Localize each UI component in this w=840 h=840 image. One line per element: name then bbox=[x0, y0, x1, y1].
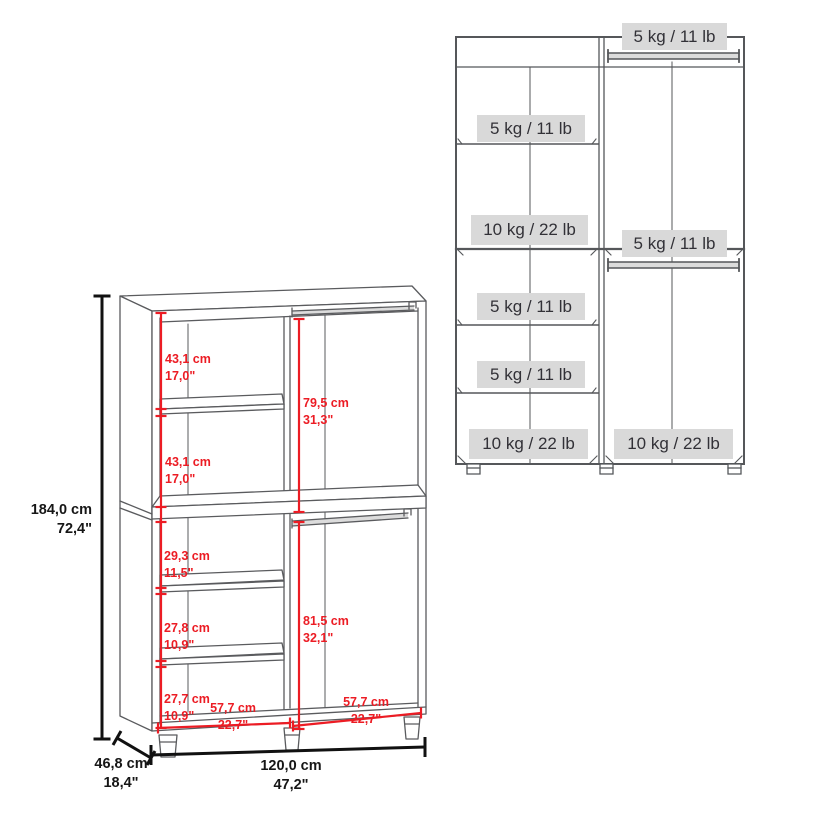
dim-in: 22,7" bbox=[198, 717, 268, 734]
linework bbox=[0, 0, 840, 840]
dim-cm: 184,0 cm bbox=[6, 501, 92, 520]
dim-top-left-upper: 43,1 cm 17,0" bbox=[165, 351, 211, 385]
weight-label: 5 kg / 11 lb bbox=[622, 23, 727, 50]
dim-in: 18,4" bbox=[84, 774, 158, 793]
dim-overall-height: 184,0 cm 72,4" bbox=[6, 501, 92, 539]
dim-bottom-left-2: 27,8 cm 10,9" bbox=[164, 620, 210, 654]
weight-label: 5 kg / 11 lb bbox=[477, 361, 585, 388]
dim-cm: 57,7 cm bbox=[198, 700, 268, 717]
dim-top-left-lower: 43,1 cm 17,0" bbox=[165, 454, 211, 488]
dim-in: 17,0" bbox=[165, 471, 211, 488]
dim-overall-depth: 46,8 cm 18,4" bbox=[84, 755, 158, 793]
dim-in: 47,2" bbox=[243, 776, 339, 795]
dim-in: 31,3" bbox=[303, 412, 349, 429]
weight-label: 5 kg / 11 lb bbox=[477, 115, 585, 142]
dim-in: 32,1" bbox=[303, 630, 349, 647]
weight-label: 10 kg / 22 lb bbox=[469, 429, 588, 459]
dim-cm: 79,5 cm bbox=[303, 395, 349, 412]
dim-bottom-left-1: 29,3 cm 11,5" bbox=[164, 548, 210, 582]
dim-in: 11,5" bbox=[164, 565, 210, 582]
dim-cm: 81,5 cm bbox=[303, 613, 349, 630]
weight-label: 10 kg / 22 lb bbox=[471, 215, 588, 245]
dim-overall-width: 120,0 cm 47,2" bbox=[243, 757, 339, 795]
product-dimension-sheet: 43,1 cm 17,0" 43,1 cm 17,0" 79,5 cm 31,3… bbox=[0, 0, 840, 840]
dim-bottom-left-width: 57,7 cm 22,7" bbox=[198, 700, 268, 734]
dim-cm: 120,0 cm bbox=[243, 757, 339, 776]
dim-in: 22,7" bbox=[331, 711, 401, 728]
dim-in: 10,9" bbox=[164, 637, 210, 654]
weight-label: 10 kg / 22 lb bbox=[614, 429, 733, 459]
dim-in: 72,4" bbox=[6, 520, 92, 539]
weight-label: 5 kg / 11 lb bbox=[477, 293, 585, 320]
dim-cm: 57,7 cm bbox=[331, 694, 401, 711]
dim-cm: 43,1 cm bbox=[165, 454, 211, 471]
dim-cm: 27,8 cm bbox=[164, 620, 210, 637]
front-feet bbox=[467, 464, 741, 474]
dim-bottom-right-hang: 81,5 cm 32,1" bbox=[303, 613, 349, 647]
dim-cm: 46,8 cm bbox=[84, 755, 158, 774]
dim-in: 17,0" bbox=[165, 368, 211, 385]
dim-top-right-hang: 79,5 cm 31,3" bbox=[303, 395, 349, 429]
dim-bottom-right-width: 57,7 cm 22,7" bbox=[331, 694, 401, 728]
dim-cm: 43,1 cm bbox=[165, 351, 211, 368]
dim-cm: 29,3 cm bbox=[164, 548, 210, 565]
weight-label: 5 kg / 11 lb bbox=[622, 230, 727, 257]
